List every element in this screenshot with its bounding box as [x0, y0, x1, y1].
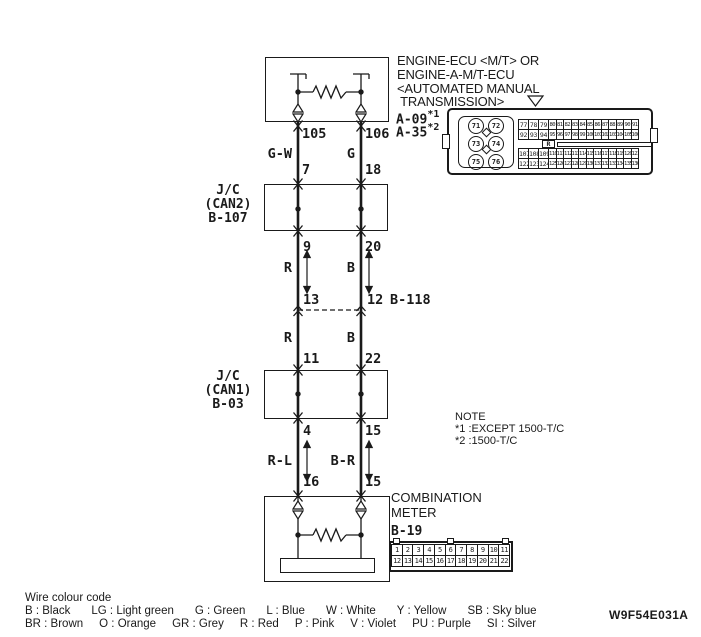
legend-item: BR : Brown: [25, 618, 83, 630]
wire-color-label: G-W: [248, 146, 292, 162]
legend-item: L : Blue: [266, 605, 305, 617]
connector-cavity: 106: [631, 129, 640, 140]
pin-label: 4: [303, 423, 311, 439]
wire-color-label: B-R: [311, 453, 355, 469]
legend-item: LG : Light green: [91, 605, 173, 617]
ecu-title: ENGINE-ECU <M/T> ORENGINE-A-M/T-ECU<AUTO…: [397, 54, 539, 109]
can-bus-wires: [298, 122, 361, 496]
legend-title: Wire colour code: [25, 592, 111, 604]
legend-item: P : Pink: [295, 618, 334, 630]
pin-label: 20: [365, 239, 381, 255]
wire-color-label: B: [311, 260, 355, 276]
engine-ecu-box: [265, 57, 389, 122]
pin-label: 105: [302, 126, 326, 142]
note-lines: *1 :EXCEPT 1500-T/C*2 :1500-T/C: [455, 424, 564, 448]
ecu-title-line: ENGINE-A-M/T-ECU: [397, 68, 539, 82]
legend-item: V : Violet: [350, 618, 396, 630]
connector-cavity: 22: [498, 555, 510, 567]
wire-color-label: B: [311, 330, 355, 346]
note-title: NOTE: [455, 412, 564, 424]
connector-tab: [393, 538, 400, 544]
jc-can2-box: [264, 184, 388, 231]
wire-color-label: R: [248, 260, 292, 276]
connector-cavity: 76: [488, 154, 504, 170]
connector-latch-marker: R: [542, 140, 555, 148]
legend-item: GR : Grey: [172, 618, 224, 630]
connector-tab: [442, 134, 450, 149]
legend-row-2: BR : BrownO : OrangeGR : GreyR : RedP : …: [25, 618, 552, 630]
connector-a-round-cavities: 717273747576: [458, 116, 514, 168]
wire-color-label: R-L: [248, 453, 292, 469]
pin-label: 15: [365, 474, 381, 490]
connector-ref-note: *2: [427, 122, 439, 133]
legend-item: O : Orange: [99, 618, 156, 630]
wire-color-label: R: [248, 330, 292, 346]
pin-label: 18: [365, 162, 381, 178]
jc-label-line: (CAN1): [197, 384, 259, 398]
document-code: W9F54E031A: [609, 608, 688, 622]
connector-tab: [447, 538, 454, 544]
pin-label: 22: [365, 351, 381, 367]
jc-label-line: B-107: [197, 212, 259, 226]
pin-label: 7: [302, 162, 310, 178]
connector-latch: R: [519, 140, 654, 148]
legend-item: Y : Yellow: [397, 605, 447, 617]
jc-can1-box: [264, 370, 388, 419]
connector-cavity: 136: [631, 158, 640, 169]
legend-item: SI : Silver: [487, 618, 536, 630]
pin-label: 15: [365, 423, 381, 439]
meter-internal-unit: [280, 558, 375, 573]
meter-title-line: METER: [391, 506, 482, 521]
connector-a-grid: 777879808182838485868788899091 929394959…: [519, 119, 654, 169]
pin-label: 106: [365, 126, 389, 142]
wire-color-label: G: [311, 146, 355, 162]
pin-label: 16: [303, 474, 319, 490]
jc-label-line: B-03: [197, 398, 259, 412]
jc-label-line: J/C: [197, 370, 259, 384]
pin-label: 11: [303, 351, 319, 367]
jc-can2-label: J/C(CAN2)B-107: [197, 184, 259, 226]
legend-item: PU : Purple: [412, 618, 471, 630]
connector-cavity: 75: [468, 154, 484, 170]
jc-label-line: (CAN2): [197, 198, 259, 212]
pin-label: 13: [303, 292, 319, 308]
legend-row-1: B : BlackLG : Light greenG : GreenL : Bl…: [25, 605, 558, 617]
meter-connector-pinout: 1234567891011 1213141516171819202122: [389, 541, 513, 572]
meter-connector-ref: B-19: [391, 524, 422, 539]
note-line: *2 :1500-T/C: [455, 436, 564, 448]
connector-tab: [502, 538, 509, 544]
ecu-title-line: ENGINE-ECU <M/T> OR: [397, 54, 539, 68]
meter-title: COMBINATIONMETER: [391, 491, 482, 520]
jc-can1-label: J/C(CAN1)B-03: [197, 370, 259, 412]
wiring-diagram-page: ENGINE-ECU <M/T> ORENGINE-A-M/T-ECU<AUTO…: [0, 0, 701, 637]
legend-item: SB : Sky blue: [467, 605, 536, 617]
pin-label: 12: [367, 292, 383, 308]
b118-connector-ref: B-118: [390, 292, 431, 308]
legend-item: G : Green: [195, 605, 246, 617]
connector-ref-a35: A-35*2: [396, 123, 439, 140]
jc-label-line: J/C: [197, 184, 259, 198]
connector-ref-note: *1: [427, 109, 439, 120]
pin-label: 9: [303, 239, 311, 255]
ecu-connector-pinout: 717273747576 777879808182838485868788899…: [447, 108, 653, 175]
ecu-title-line: <AUTOMATED MANUAL: [397, 82, 539, 96]
connector-ref-label: A-35: [396, 125, 427, 140]
note-block: NOTE *1 :EXCEPT 1500-T/C*2 :1500-T/C: [455, 412, 564, 448]
legend-item: B : Black: [25, 605, 70, 617]
legend-item: W : White: [326, 605, 376, 617]
meter-title-line: COMBINATION: [391, 491, 482, 506]
legend-item: R : Red: [240, 618, 279, 630]
